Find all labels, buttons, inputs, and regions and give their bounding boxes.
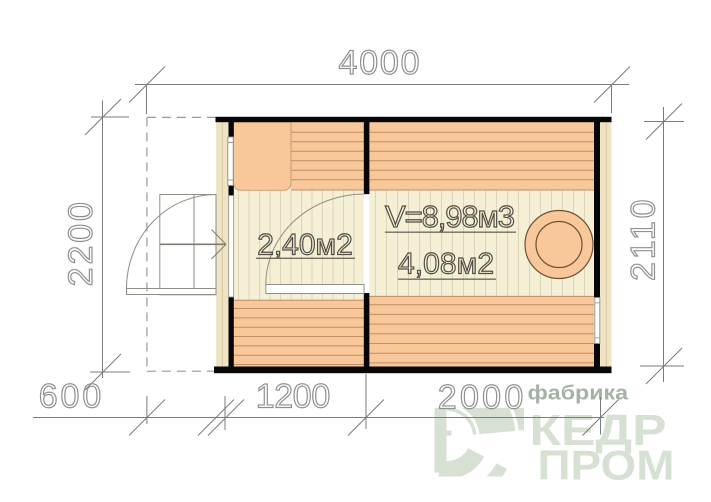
svg-text:2200: 2200 <box>62 202 100 286</box>
svg-text:ПРОМ: ПРОМ <box>538 441 675 488</box>
svg-text:1200: 1200 <box>256 377 331 415</box>
svg-text:4000: 4000 <box>339 44 420 82</box>
svg-text:2110: 2110 <box>625 199 663 281</box>
svg-text:фабрика: фабрика <box>528 383 630 405</box>
svg-text:4,08м2: 4,08м2 <box>398 248 494 281</box>
svg-text:600: 600 <box>39 378 102 416</box>
svg-text:V=8,98м3: V=8,98м3 <box>385 199 515 234</box>
svg-text:2,40м2: 2,40м2 <box>257 229 353 262</box>
